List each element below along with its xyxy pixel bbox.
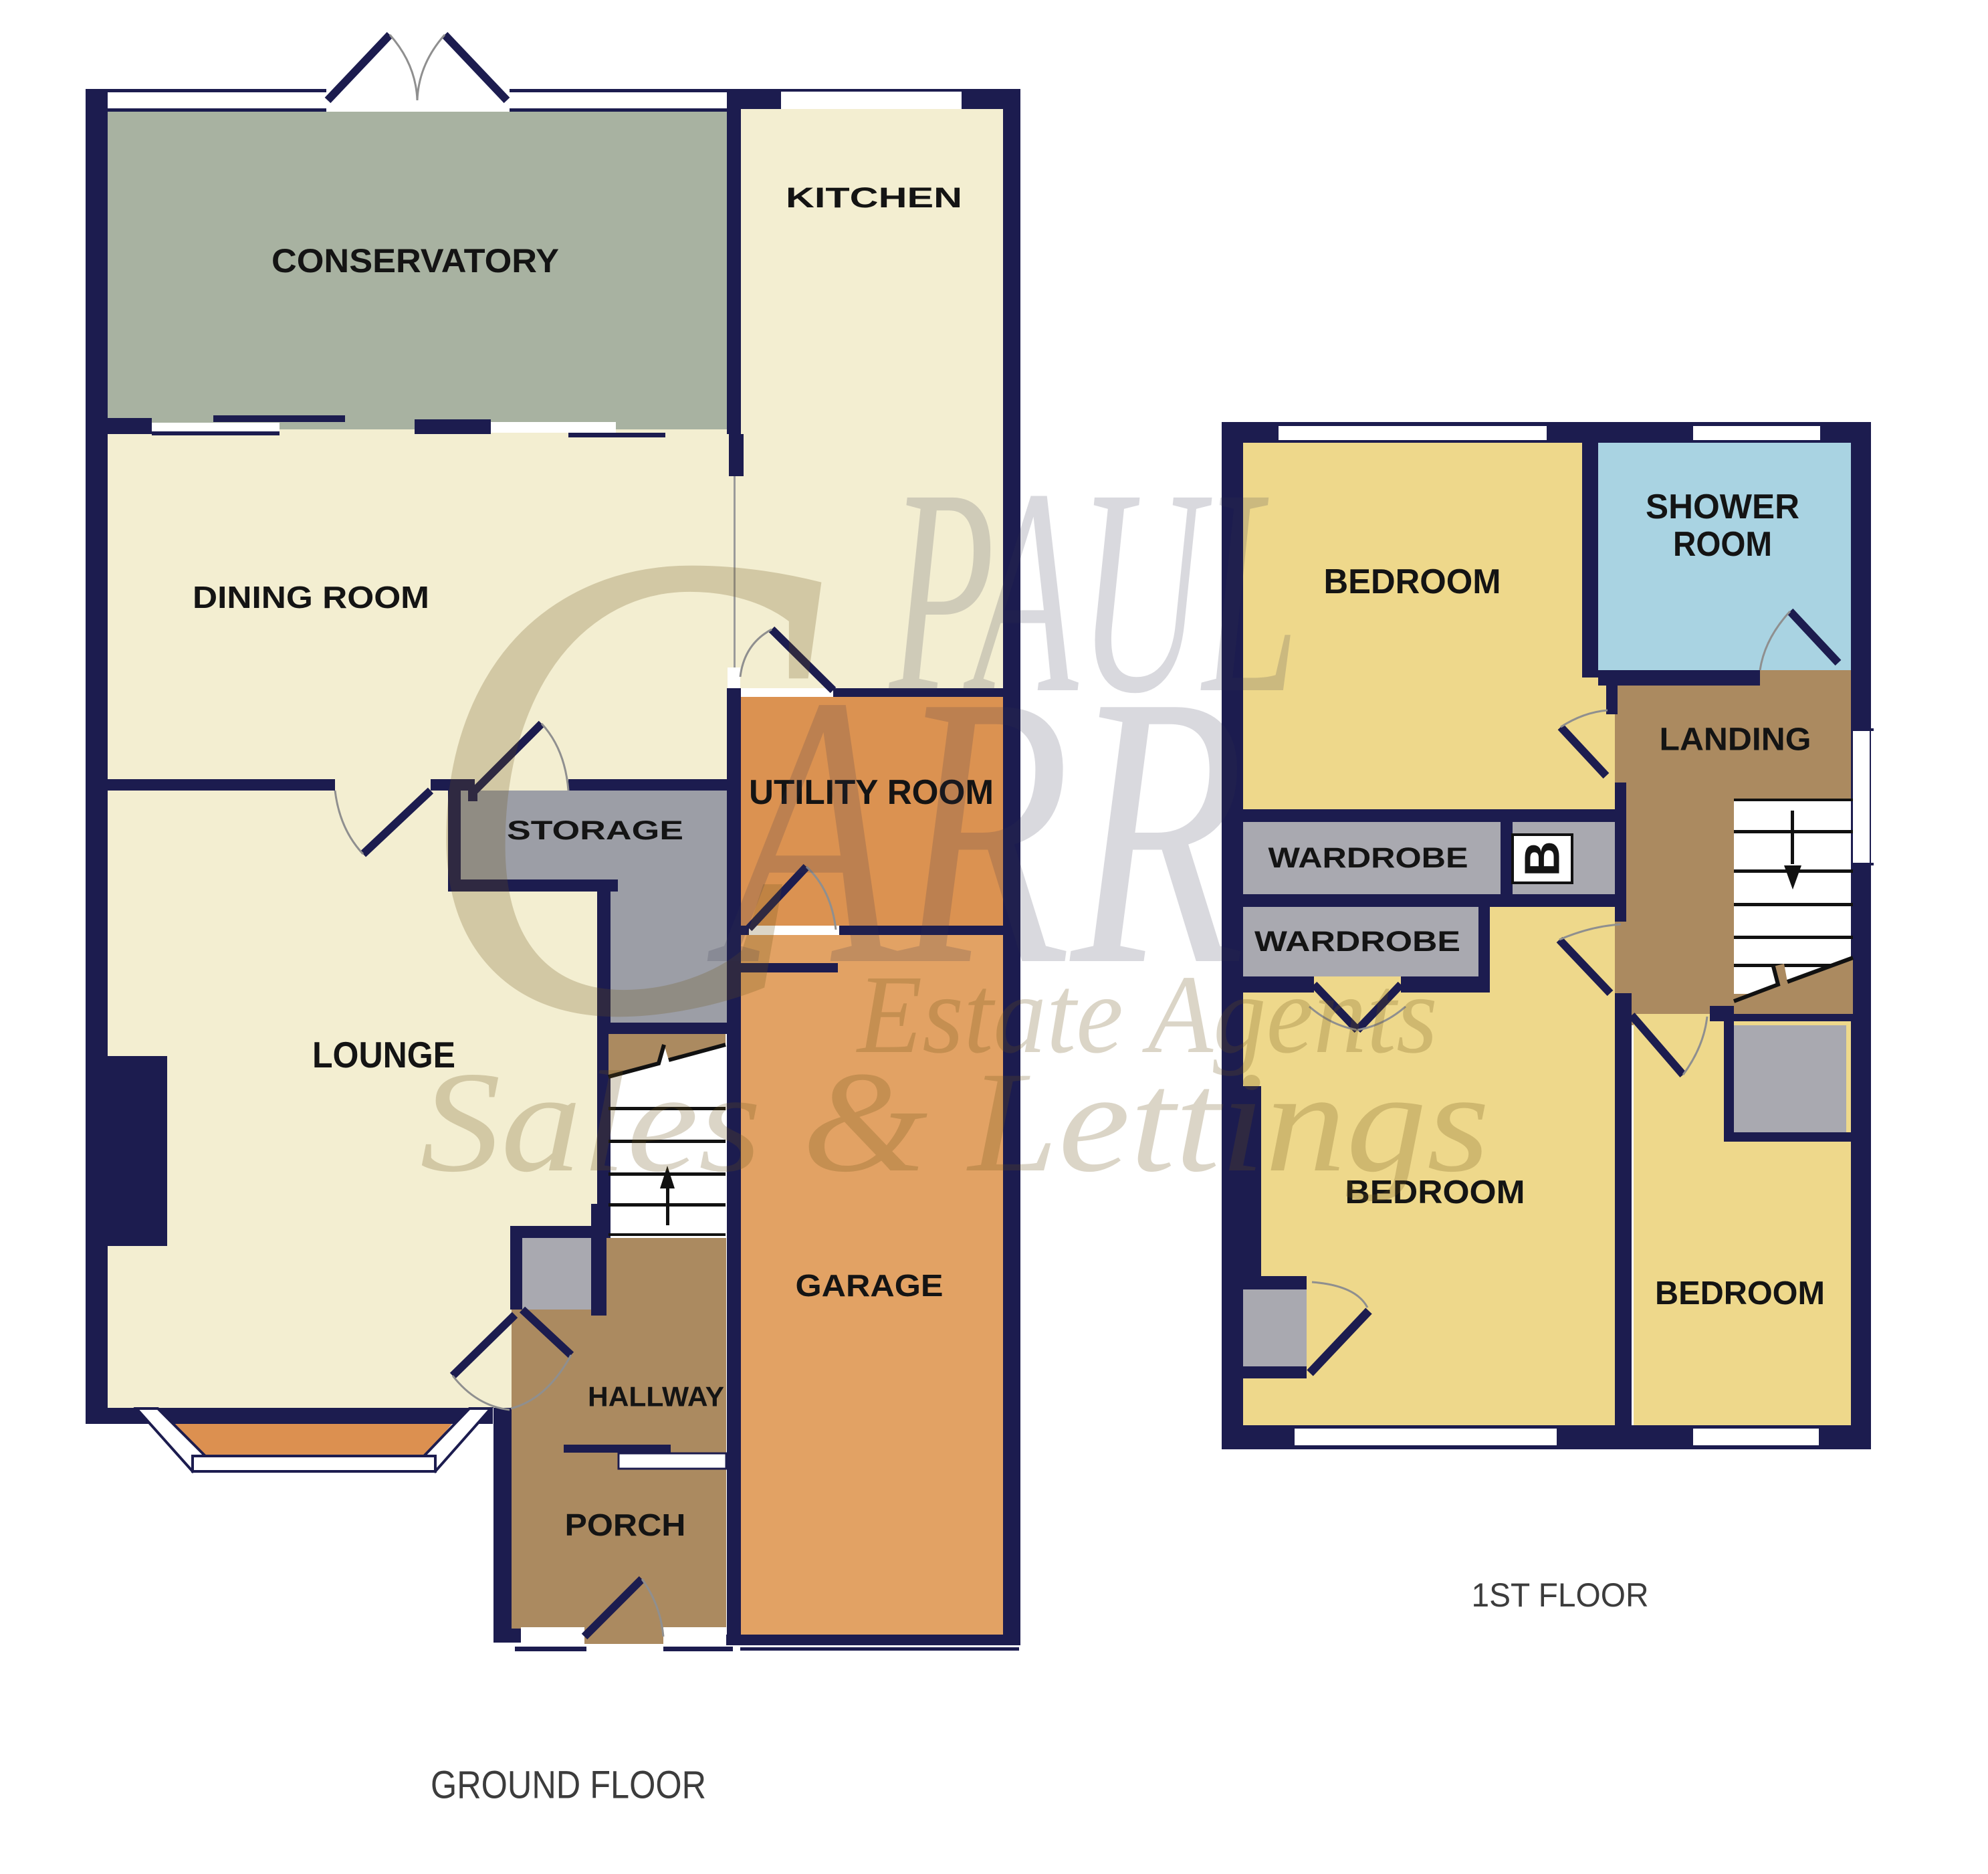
svg-text:Sales & Lettings: Sales & Lettings bbox=[420, 1042, 1490, 1202]
svg-text:DINING ROOM: DINING ROOM bbox=[193, 580, 429, 615]
svg-text:WARDROBE: WARDROBE bbox=[1268, 842, 1468, 874]
svg-text:B: B bbox=[1515, 841, 1570, 876]
svg-text:ROOM: ROOM bbox=[1673, 525, 1772, 564]
svg-text:KITCHEN: KITCHEN bbox=[786, 182, 962, 214]
svg-text:SHOWER: SHOWER bbox=[1646, 488, 1799, 526]
svg-text:PORCH: PORCH bbox=[565, 1507, 686, 1542]
svg-text:1ST FLOOR: 1ST FLOOR bbox=[1472, 1576, 1649, 1614]
svg-text:GARAGE: GARAGE bbox=[796, 1268, 944, 1303]
svg-text:GROUND FLOOR: GROUND FLOOR bbox=[431, 1764, 706, 1807]
svg-text:HALLWAY: HALLWAY bbox=[588, 1381, 724, 1413]
svg-text:BEDROOM: BEDROOM bbox=[1324, 562, 1501, 601]
svg-text:BEDROOM: BEDROOM bbox=[1655, 1275, 1825, 1312]
svg-text:CONSERVATORY: CONSERVATORY bbox=[271, 242, 559, 280]
svg-text:LANDING: LANDING bbox=[1660, 722, 1811, 758]
